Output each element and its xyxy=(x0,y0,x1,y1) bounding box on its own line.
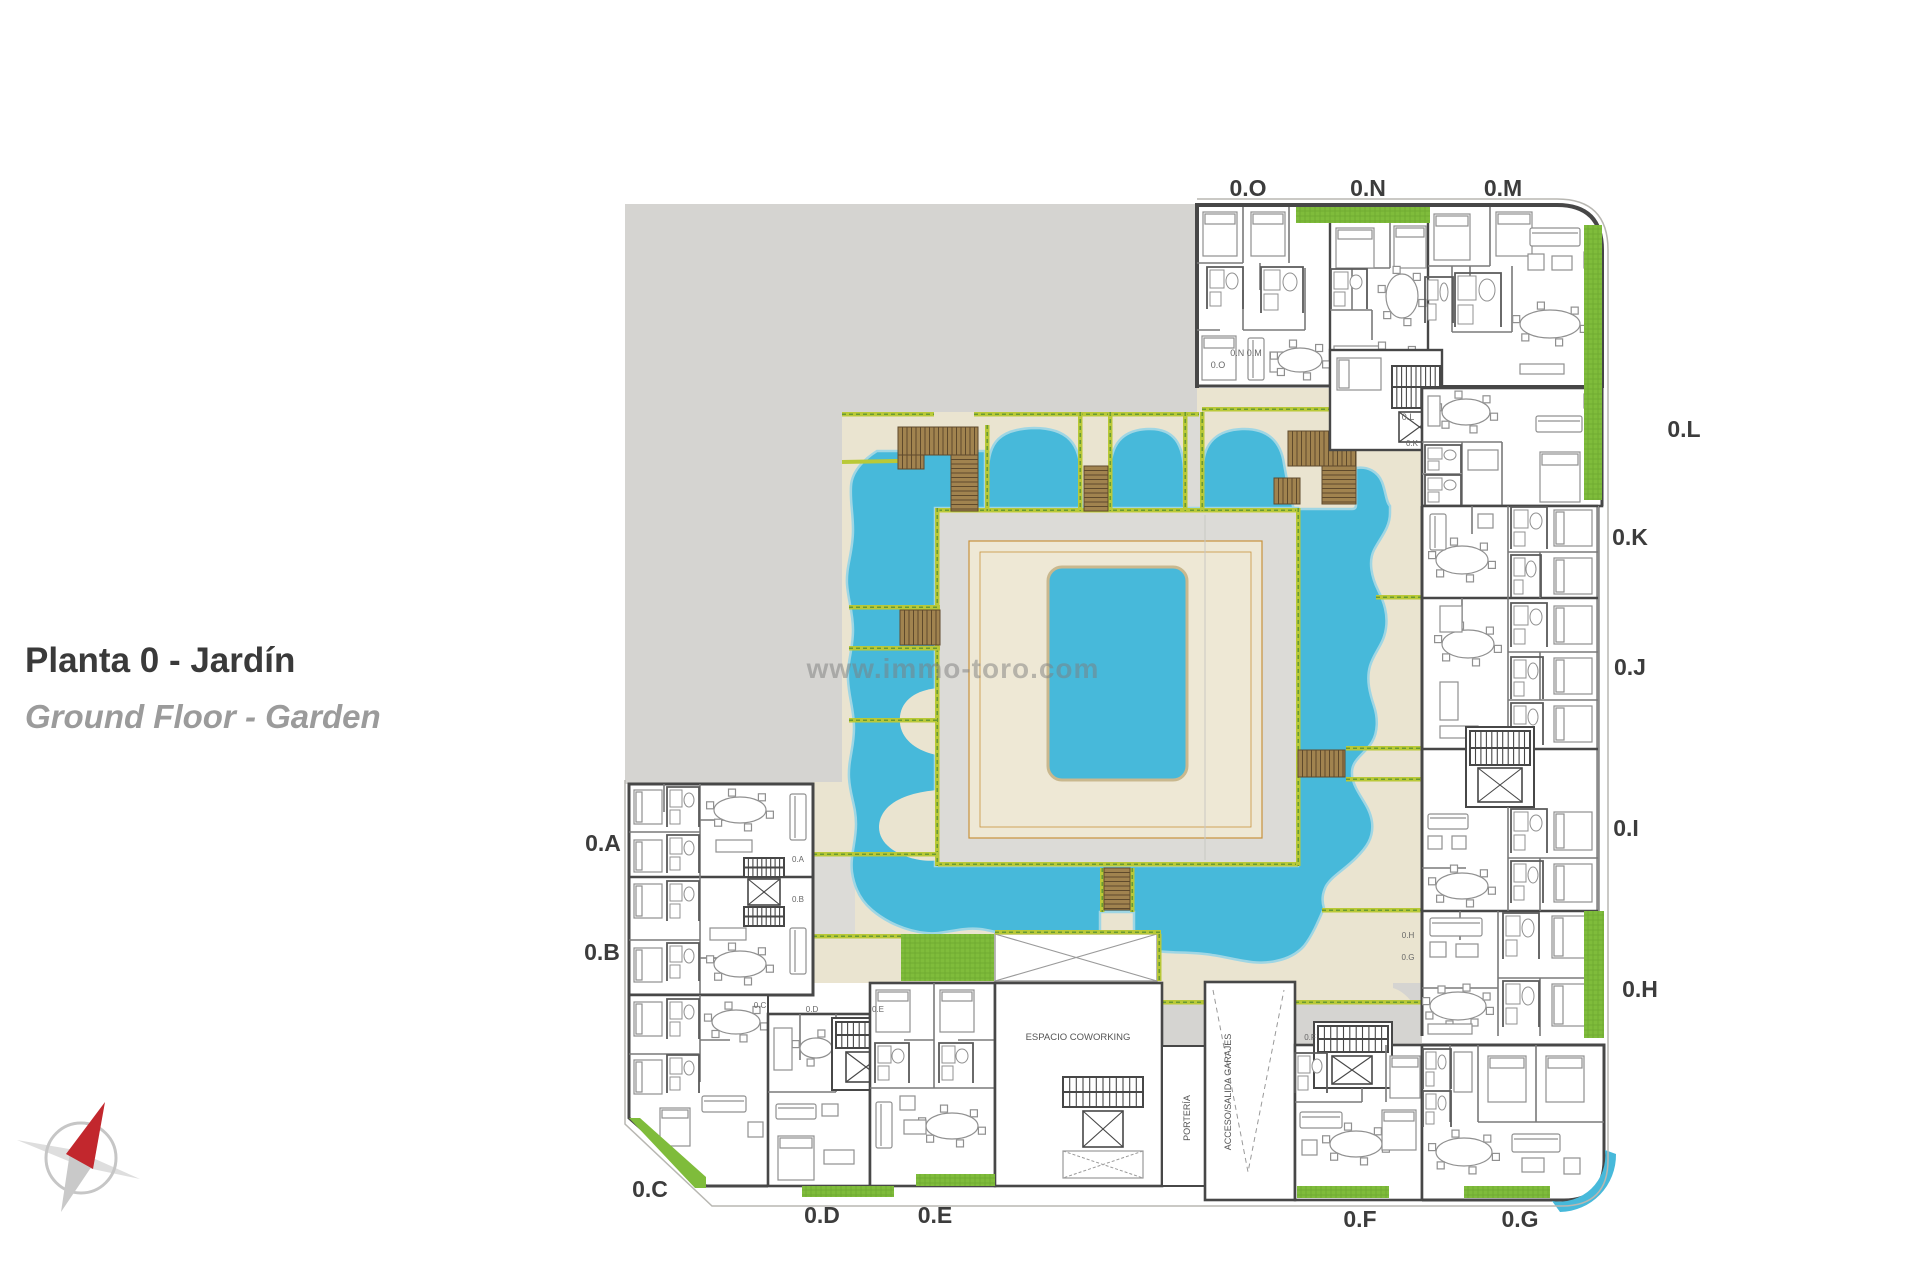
svg-text:0.A: 0.A xyxy=(792,855,805,864)
svg-text:0.N 0.M: 0.N 0.M xyxy=(1230,348,1262,358)
svg-text:0.G: 0.G xyxy=(1501,1206,1538,1232)
svg-text:0.L: 0.L xyxy=(1667,416,1700,442)
svg-text:0.O: 0.O xyxy=(1211,360,1226,370)
svg-text:0.G: 0.G xyxy=(1402,953,1415,962)
svg-text:0.N: 0.N xyxy=(1350,175,1386,201)
svg-text:0.L: 0.L xyxy=(1402,412,1415,422)
svg-text:0.C: 0.C xyxy=(754,1001,767,1010)
svg-text:0.F: 0.F xyxy=(1343,1206,1376,1232)
svg-text:0.B: 0.B xyxy=(792,895,804,904)
svg-text:0.D: 0.D xyxy=(806,1005,819,1014)
svg-text:0.H: 0.H xyxy=(1402,931,1415,940)
svg-text:0.E: 0.E xyxy=(872,1005,884,1014)
svg-text:0.F: 0.F xyxy=(1304,1033,1316,1042)
svg-text:0.J: 0.J xyxy=(1614,654,1646,680)
svg-text:0.K: 0.K xyxy=(1406,439,1419,448)
svg-text:ESPACIO COWORKING: ESPACIO COWORKING xyxy=(1026,1032,1131,1043)
svg-text:0.I: 0.I xyxy=(1613,815,1639,841)
svg-text:0.C: 0.C xyxy=(632,1176,668,1202)
svg-text:www.immo-toro.com: www.immo-toro.com xyxy=(806,653,1100,684)
svg-text:0.D: 0.D xyxy=(804,1202,840,1228)
svg-text:PORTERÍA: PORTERÍA xyxy=(1182,1095,1192,1141)
svg-text:ACCESO/SALIDA GARAJES: ACCESO/SALIDA GARAJES xyxy=(1223,1034,1233,1151)
svg-text:0.O: 0.O xyxy=(1229,175,1266,201)
svg-text:0.B: 0.B xyxy=(584,939,620,965)
svg-text:0.E: 0.E xyxy=(918,1202,953,1228)
svg-text:0.A: 0.A xyxy=(585,830,621,856)
svg-text:0.H: 0.H xyxy=(1622,976,1658,1002)
svg-text:Ground Floor - Garden: Ground Floor - Garden xyxy=(25,698,381,735)
svg-text:Planta 0 - Jardín: Planta 0 - Jardín xyxy=(25,641,295,680)
svg-text:0.K: 0.K xyxy=(1612,524,1648,550)
svg-text:0.M: 0.M xyxy=(1484,175,1522,201)
